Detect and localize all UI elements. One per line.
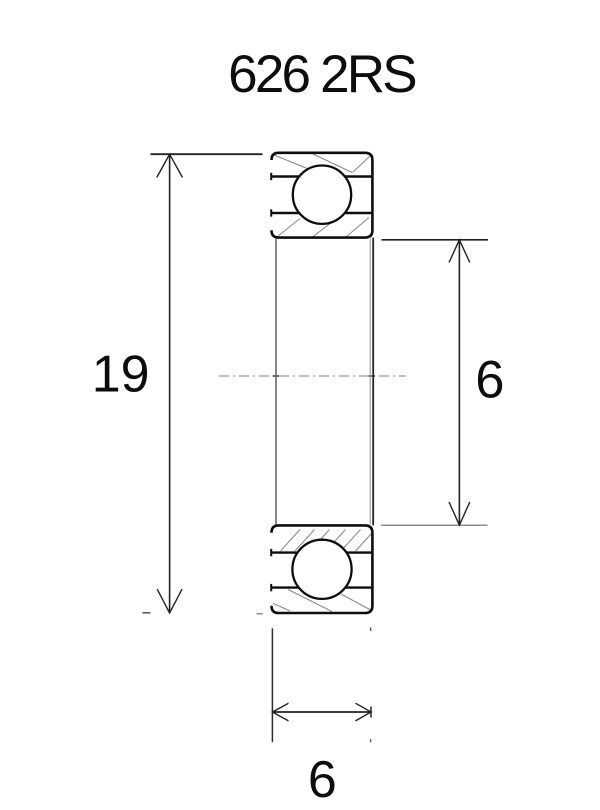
svg-text:19: 19 <box>92 346 150 404</box>
svg-text:626 2RS: 626 2RS <box>228 45 415 104</box>
svg-text:6: 6 <box>308 751 337 809</box>
svg-text:6: 6 <box>475 351 504 410</box>
